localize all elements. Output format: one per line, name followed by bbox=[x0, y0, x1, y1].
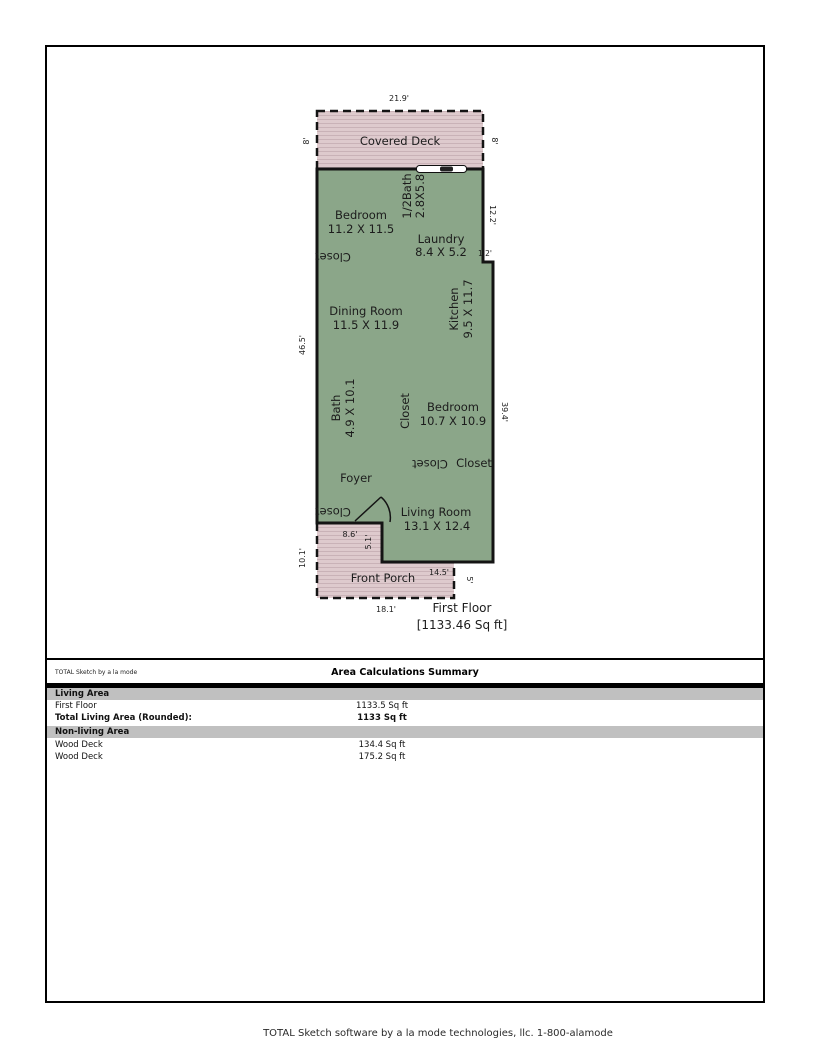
dimension-label-right-lower: 39.4' bbox=[500, 402, 509, 422]
dimension-label-porch-right: 5' bbox=[465, 576, 474, 583]
section-header-non-living-area: Non-living Area bbox=[47, 726, 763, 738]
room-dims-bath: 4.9 X 10.1 bbox=[343, 378, 357, 437]
section-header-label: Non-living Area bbox=[55, 727, 129, 737]
room-label-bedroom1: Bedroom bbox=[335, 208, 387, 222]
dimension-label-porch-step: 5.1' bbox=[364, 535, 373, 550]
table-row-wood-deck-1: Wood Deck 134.4 Sq ft bbox=[47, 739, 763, 751]
sketch-report-page: { "plan": { "colors": { "living_fill": "… bbox=[0, 0, 816, 1056]
room-label-bedroom2: Bedroom bbox=[427, 400, 479, 414]
closet-label-top-left: Closet bbox=[315, 250, 351, 264]
dimension-label-porch-top: 8.6' bbox=[343, 530, 358, 539]
row-label: Total Living Area (Rounded): bbox=[55, 713, 192, 723]
closet-label-pair-right: Closet bbox=[456, 456, 492, 470]
room-label-front-porch: Front Porch bbox=[351, 571, 415, 585]
room-label-living: Living Room bbox=[401, 505, 472, 519]
closet-label-porch: Closet bbox=[315, 505, 351, 519]
table-row-wood-deck-2: Wood Deck 175.2 Sq ft bbox=[47, 751, 763, 763]
row-label: Wood Deck bbox=[55, 752, 103, 762]
row-value: 175.2 Sq ft bbox=[307, 752, 457, 762]
room-label-laundry: Laundry bbox=[418, 232, 465, 246]
closet-label-pair-left: Closet bbox=[412, 457, 448, 471]
page-footer: TOTAL Sketch software by a la mode techn… bbox=[30, 1028, 816, 1039]
room-dims-dining: 11.5 X 11.9 bbox=[333, 318, 399, 332]
room-dims-bedroom2: 10.7 X 10.9 bbox=[420, 414, 486, 428]
room-label-kitchen: Kitchen bbox=[447, 287, 461, 330]
floor-plan-drawing: Covered Deck Bedroom 11.2 X 11.5 1/2Bath… bbox=[0, 0, 816, 660]
floor-area-total: [1133.46 Sq ft] bbox=[417, 618, 508, 632]
section-header-label: Living Area bbox=[55, 689, 109, 699]
dimension-label-porch-bottom: 18.1' bbox=[376, 605, 396, 614]
room-label-covered-deck: Covered Deck bbox=[360, 134, 441, 148]
table-title: Area Calculations Summary bbox=[47, 667, 763, 678]
section-header-living-area: Living Area bbox=[47, 688, 763, 700]
table-title-row: TOTAL Sketch by a la mode Area Calculati… bbox=[47, 663, 763, 681]
row-label: Wood Deck bbox=[55, 740, 103, 750]
dimension-label-left-side: 46.5' bbox=[298, 335, 307, 355]
row-value: 134.4 Sq ft bbox=[307, 740, 457, 750]
row-label: First Floor bbox=[55, 701, 97, 711]
window-symbol bbox=[417, 166, 467, 173]
dimension-label-deck-width: 21.9' bbox=[389, 94, 409, 103]
dimension-label-deck-left: 8' bbox=[302, 137, 311, 144]
room-dims-laundry: 8.4 X 5.2 bbox=[415, 245, 467, 259]
closet-label-middle: Closet bbox=[398, 393, 412, 429]
dimension-label-porch-left: 10.1' bbox=[298, 548, 307, 568]
dimension-label-right-upper: 12.2' bbox=[488, 205, 497, 225]
table-row-first-floor: First Floor 1133.5 Sq ft bbox=[47, 700, 763, 712]
floor-title: First Floor bbox=[433, 601, 492, 615]
room-label-half-bath: 1/2Bath bbox=[400, 173, 414, 218]
room-dims-bedroom1: 11.2 X 11.5 bbox=[328, 222, 394, 236]
table-row-total-living-area: Total Living Area (Rounded): 1133 Sq ft bbox=[47, 712, 763, 724]
room-label-bath: Bath bbox=[329, 395, 343, 422]
room-label-foyer: Foyer bbox=[340, 471, 372, 485]
row-value: 1133.5 Sq ft bbox=[307, 701, 457, 711]
row-value: 1133 Sq ft bbox=[307, 713, 457, 723]
room-label-dining: Dining Room bbox=[329, 304, 403, 318]
dimension-label-step: 1.2' bbox=[478, 249, 492, 258]
room-dims-half-bath: 2.8X5.8 bbox=[413, 174, 427, 218]
dimension-label-bottom-inner: 14.5' bbox=[429, 568, 449, 577]
dimension-label-deck-right: 8' bbox=[490, 137, 499, 144]
room-dims-living: 13.1 X 12.4 bbox=[404, 519, 470, 533]
table-top-rule bbox=[46, 658, 764, 660]
room-dims-kitchen: 9.5 X 11.7 bbox=[461, 279, 475, 338]
